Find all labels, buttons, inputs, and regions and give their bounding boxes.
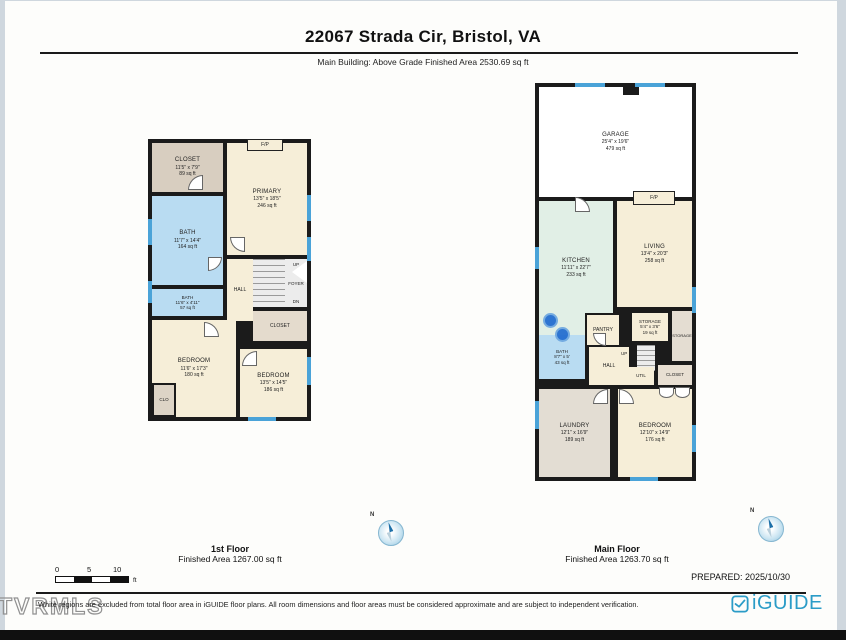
room-label: CLOSET [270, 323, 290, 330]
room-area: 180 sq ft [184, 372, 203, 379]
stairs-treads-1f [253, 259, 285, 307]
prepared-date: PREPARED: 2025/10/30 [600, 572, 790, 582]
window [148, 219, 152, 245]
room-living: LIVING 13'4" x 20'3" 258 sq ft [617, 201, 692, 307]
fireplace-label: F/P [261, 142, 269, 148]
room-area: 233 sq ft [566, 272, 585, 279]
compass-rose-main: N [750, 508, 784, 542]
closet-door-arc [659, 387, 674, 398]
fireplace-1f: F/P [247, 139, 283, 151]
room-label: CLOSET [175, 157, 200, 165]
floor-caption-title: Main Floor [517, 544, 717, 554]
scale-seg [92, 577, 110, 582]
foyer-label: FOYER [288, 281, 304, 286]
room-garage: GARAGE 25'4" x 19'6" 479 sq ft [539, 87, 692, 197]
footer-divider [36, 592, 806, 594]
room-area: 19 sq ft [643, 330, 658, 335]
window [630, 477, 658, 481]
page-subtitle: Main Building: Above Grade Finished Area… [0, 57, 846, 67]
header-divider [40, 52, 798, 54]
floorplan-main-floor: GARAGE 25'4" x 19'6" 479 sq ft KITCHEN 1… [535, 83, 696, 481]
stairs-up-text: UP [621, 351, 627, 356]
fireplace-main: F/P [633, 191, 675, 205]
window [307, 357, 311, 385]
stairs-up-label: UP [621, 351, 627, 356]
window [692, 287, 696, 313]
window [575, 83, 605, 87]
room-area: 164 sq ft [178, 244, 197, 251]
floor-caption-title: 1st Floor [130, 544, 330, 554]
caption-main-floor: Main Floor Finished Area 1263.70 sq ft [517, 544, 717, 564]
paper-background [5, 1, 837, 631]
camera-dot [543, 313, 558, 328]
room-label: PRIMARY [253, 189, 282, 197]
room-bath-main: BATH 11'7" x 14'4" 164 sq ft [152, 196, 223, 285]
caption-1st-floor: 1st Floor Finished Area 1267.00 sq ft [130, 544, 330, 564]
iguide-logo: iGUIDE [731, 592, 823, 615]
stairs-down-label: DN [293, 299, 300, 304]
room-label: STORAGE [672, 333, 692, 338]
room-area: 57 sq ft [180, 305, 195, 310]
page-title: 22067 Strada Cir, Bristol, VA [0, 27, 846, 47]
room-label: CLOSET [666, 372, 684, 378]
room-area: 246 sq ft [257, 203, 276, 210]
room-area: 43 sq ft [555, 360, 570, 365]
room-area: 186 sq ft [264, 387, 283, 394]
room-label: UTIL [636, 373, 646, 379]
wall-stub [623, 87, 639, 95]
floor-caption-area: Finished Area 1267.00 sq ft [130, 554, 330, 564]
room-label: BATH [179, 230, 195, 238]
compass-north-label: N [750, 508, 754, 514]
iguide-logo-text: iGUIDE [752, 592, 823, 615]
room-label: HALL [603, 363, 616, 370]
floorplan-1st-floor: CLOSET 11'5" x 7'9" 89 sq ft PRIMARY 13'… [148, 139, 311, 421]
bottom-black-bar [0, 630, 846, 640]
scale-bar: 0 5 10 ft [55, 565, 175, 591]
window [307, 237, 311, 261]
room-label: HALL [234, 287, 247, 294]
compass-circle [758, 516, 784, 542]
room-label: BEDROOM [639, 423, 671, 431]
room-label: LIVING [644, 244, 665, 252]
scale-tick-5: 5 [87, 565, 91, 574]
room-bath-small: BATH 11'6" x 4'11" 57 sq ft [152, 289, 223, 316]
room-closet-top: CLOSET 11'5" x 7'9" 89 sq ft [152, 143, 223, 192]
room-label: BEDROOM [178, 358, 210, 366]
room-storage-right: STORAGE [672, 311, 692, 361]
room-hall-1f: HALL [227, 259, 253, 321]
compass-rose-1f: N [370, 512, 404, 546]
door-arc [575, 197, 590, 212]
room-area: 258 sq ft [645, 258, 664, 265]
scale-seg [56, 577, 74, 582]
fireplace-label: F/P [650, 195, 658, 201]
floor-caption-area: Finished Area 1263.70 sq ft [517, 554, 717, 564]
room-closet-main: CLOSET [658, 365, 692, 385]
room-storage-small: STORAGE 5'4" x 3'6" 19 sq ft [630, 311, 670, 343]
compass-north-label: N [370, 512, 374, 518]
iguide-logo-icon [731, 595, 749, 613]
room-area: 176 sq ft [645, 437, 664, 444]
scale-tick-0: 0 [55, 565, 59, 574]
room-label: BEDROOM [257, 373, 289, 381]
scale-unit: ft [133, 577, 137, 584]
window [535, 247, 539, 269]
room-label: LAUNDRY [560, 423, 590, 431]
window [535, 401, 539, 429]
window [635, 83, 665, 87]
scale-seg [74, 577, 92, 582]
room-label: KITCHEN [562, 258, 590, 266]
room-util: UTIL [628, 367, 654, 385]
scale-bar-segments [55, 576, 129, 583]
room-area: 479 sq ft [606, 146, 625, 153]
compass-circle [378, 520, 404, 546]
room-closet-mid: CLOSET [253, 311, 307, 341]
floorplan-sheet: 22067 Strada Cir, Bristol, VA Main Build… [0, 0, 846, 640]
room-label: CLO [159, 397, 168, 403]
stairs-up-label: UP [293, 262, 299, 267]
closet-door-arc [675, 387, 690, 398]
room-label: GARAGE [602, 132, 629, 140]
room-area: 189 sq ft [565, 437, 584, 444]
window [248, 417, 276, 421]
window [307, 195, 311, 221]
room-clo: CLO [152, 383, 176, 417]
disclaimer-text: White regions are excluded from total fl… [38, 600, 698, 609]
scale-tick-10: 10 [113, 565, 121, 574]
camera-dot [555, 327, 570, 342]
window [148, 281, 152, 303]
scale-seg [110, 577, 128, 582]
window [692, 425, 696, 452]
